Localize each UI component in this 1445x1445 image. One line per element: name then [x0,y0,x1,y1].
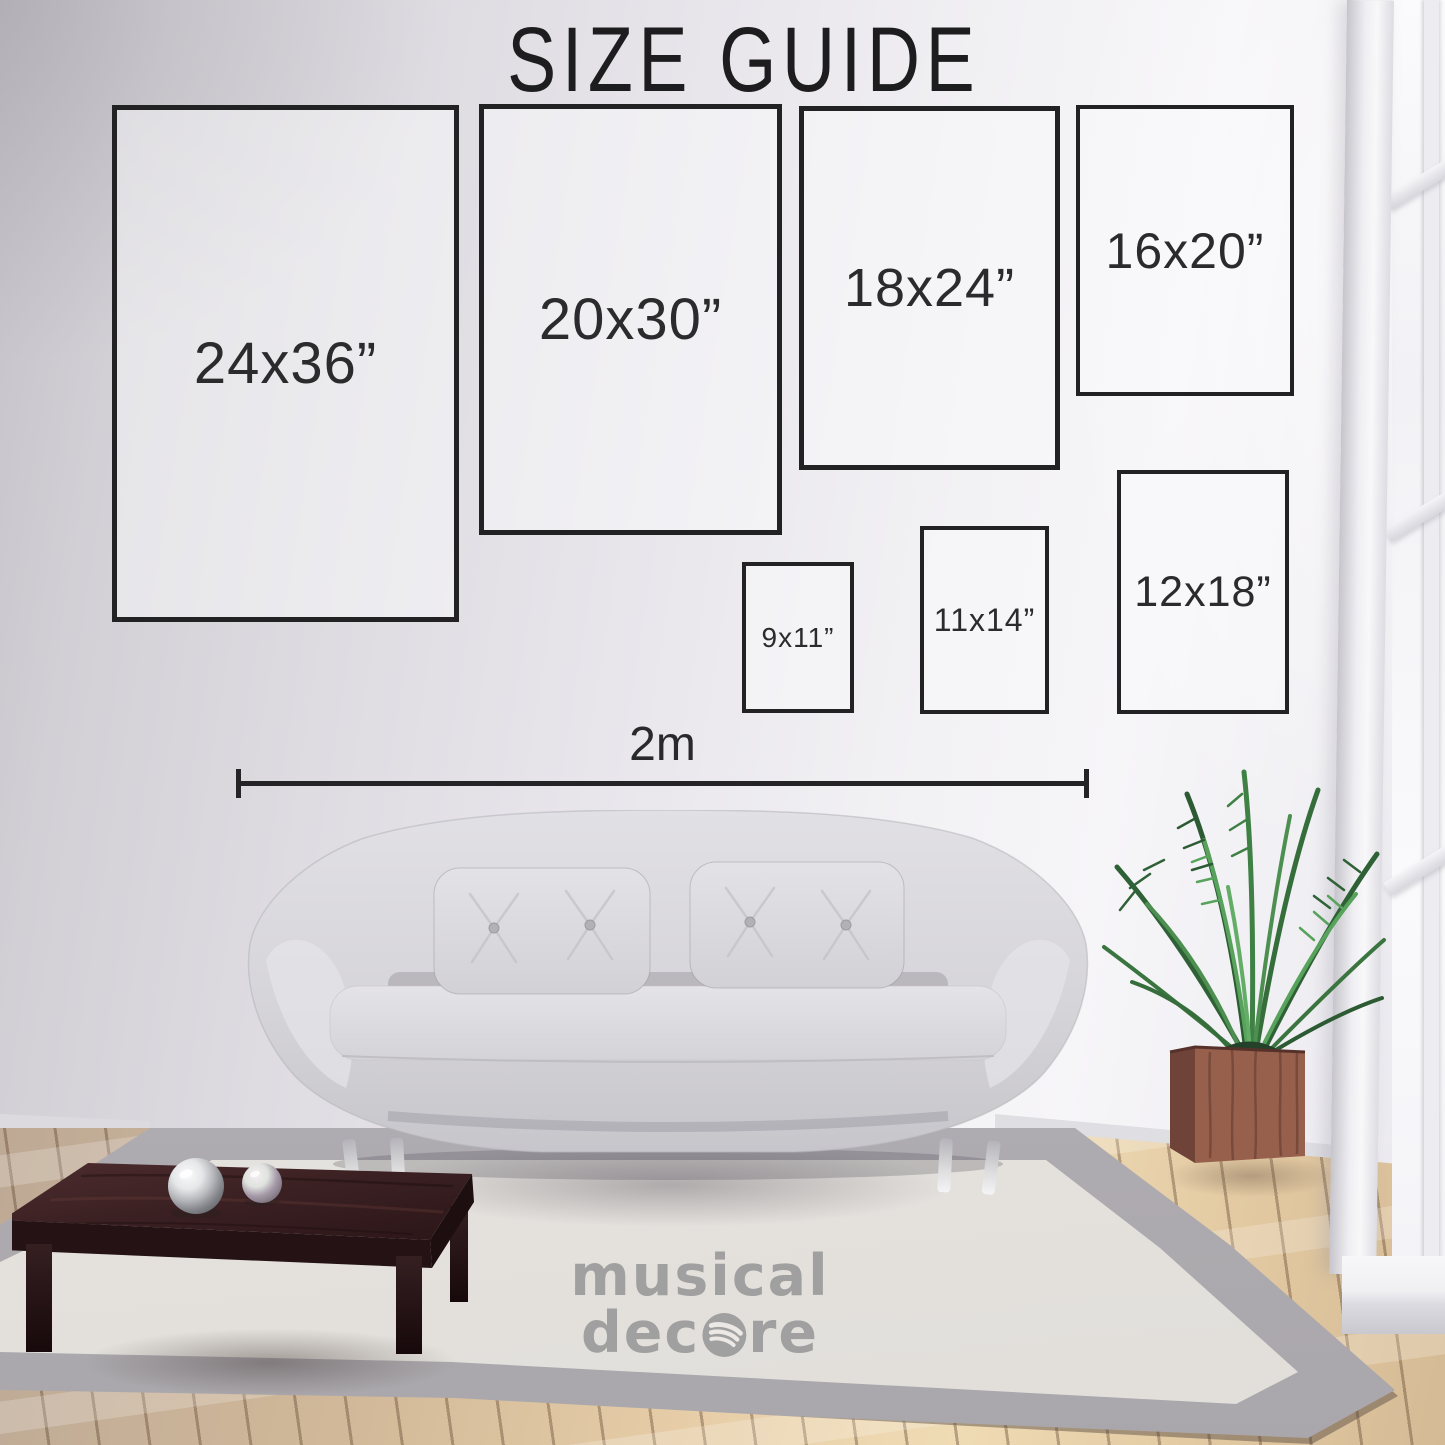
size-box-20x30: 20x30” [479,104,782,535]
size-box-label: 11x14” [934,602,1035,639]
glass-sphere-large [168,1158,224,1214]
brand-watermark: musical decre [570,1248,829,1362]
size-box-label: 18x24” [844,257,1015,319]
size-box-16x20: 16x20” [1076,105,1294,396]
potted-palm-plant [1092,732,1392,1177]
size-box-label: 12x18” [1134,568,1271,617]
glass-sphere-small [242,1163,282,1203]
size-box-18x24: 18x24” [799,106,1060,470]
size-box-label: 20x30” [539,286,722,353]
coffee-table [12,1138,512,1378]
watermark-line1: musical [570,1248,829,1305]
dimension-line: 2m [236,781,1089,786]
planter-left-face [1170,1047,1195,1163]
spotify-style-o-icon [701,1312,747,1358]
size-box-11x14: 11x14” [920,526,1049,714]
window-mullion-vertical [1424,0,1439,1266]
size-box-9x11: 9x11” [742,562,854,713]
dimension-label: 2m [629,717,696,772]
size-box-24x36: 24x36” [112,105,459,622]
size-guide-scene: SIZE GUIDE 24x36”20x30”18x24”16x20”9x11”… [0,0,1445,1445]
watermark-line2: decre [570,1305,829,1362]
window-sill [1342,1256,1445,1334]
size-box-label: 9x11” [762,622,835,654]
table-front-left-leg [26,1244,52,1352]
size-box-label: 16x20” [1106,222,1265,280]
size-box-label: 24x36” [194,330,377,397]
size-box-12x18: 12x18” [1117,470,1289,714]
table-front-right-leg [396,1256,422,1354]
